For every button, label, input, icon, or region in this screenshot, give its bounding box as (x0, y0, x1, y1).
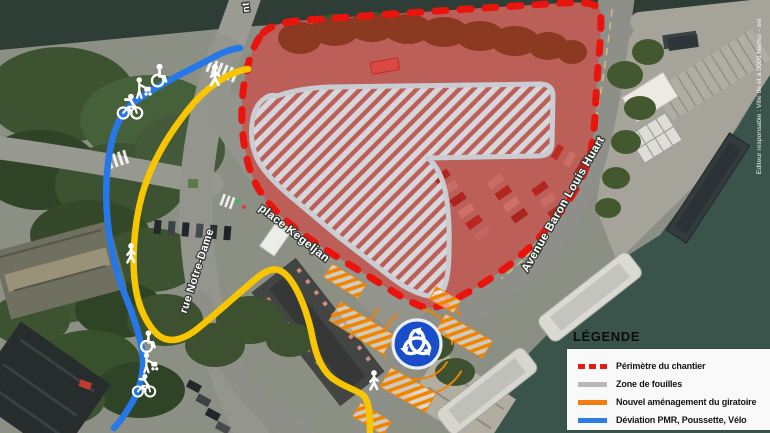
traffic-light-red (242, 205, 246, 209)
street-label-bridge-fragment: nt (241, 1, 253, 12)
construction-plan-map: rue Notre-Dame place Kegeljan Avenue Bar… (0, 0, 770, 433)
legend-title: LÉGENDE (573, 329, 770, 344)
legend-item-giratoire: Nouvel aménagement du giratoire (578, 393, 770, 411)
legend-item-label: Déviation PMR, Poussette, Vélo (616, 415, 747, 425)
legend-item-fouilles: Zone de fouilles (578, 375, 770, 393)
legend-panel: Périmètre du chantier Zone de fouilles N… (567, 349, 770, 430)
red-dashed-swatch (578, 364, 607, 369)
traffic-light-green (235, 199, 239, 203)
legend-item-label: Nouvel aménagement du giratoire (616, 397, 756, 407)
blue-swatch (578, 418, 607, 423)
legend-item-label: Périmètre du chantier (616, 361, 705, 371)
legend: LÉGENDE Périmètre du chantier Zone de fo… (567, 329, 770, 430)
legend-item-deviation: Déviation PMR, Poussette, Vélo (578, 411, 770, 429)
editor-credit: Editeur responsable : Ville de et à 5000… (756, 17, 763, 174)
legend-item-label: Zone de fouilles (616, 379, 682, 389)
legend-item-perimetre: Périmètre du chantier (578, 357, 770, 375)
roundabout-sign-icon (393, 320, 441, 368)
orange-swatch (578, 400, 607, 405)
gray-swatch (578, 382, 607, 387)
